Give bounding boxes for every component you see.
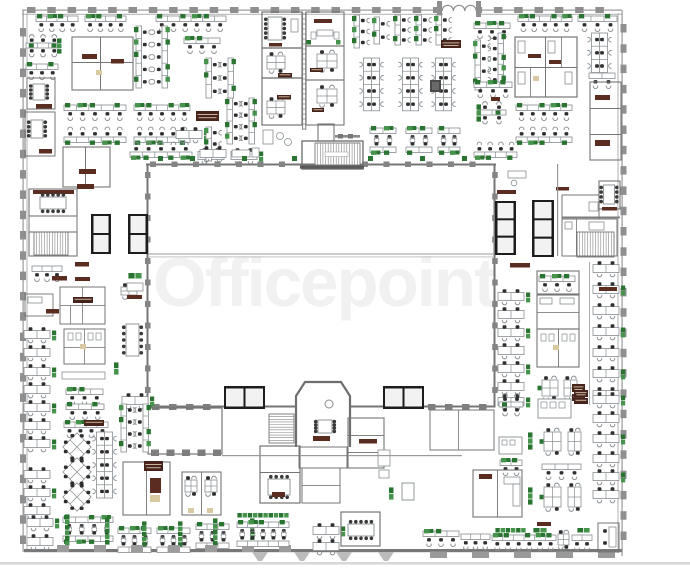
svg-text:Officepoint: Officepoint — [153, 244, 497, 321]
